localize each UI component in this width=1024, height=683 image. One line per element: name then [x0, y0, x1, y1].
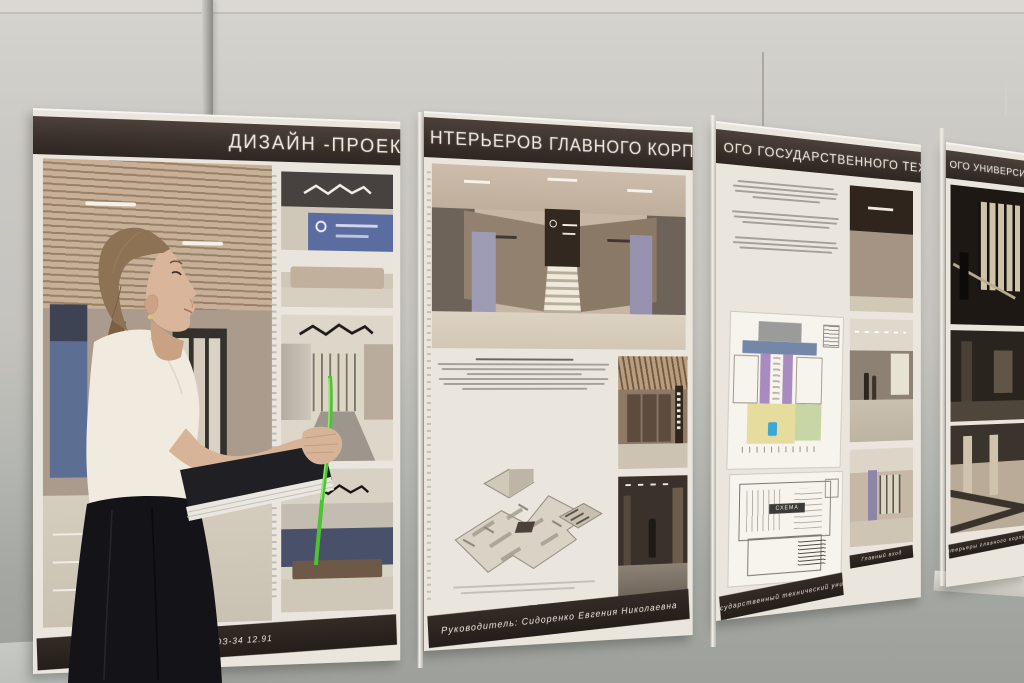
- earring: [148, 315, 153, 320]
- exhibition-photo: ДИЗАЙН -ПРОЕКТ И: [0, 0, 1024, 683]
- presenter-woman: [0, 0, 1024, 683]
- black-skirt: [68, 496, 222, 683]
- face-profile: [146, 247, 197, 332]
